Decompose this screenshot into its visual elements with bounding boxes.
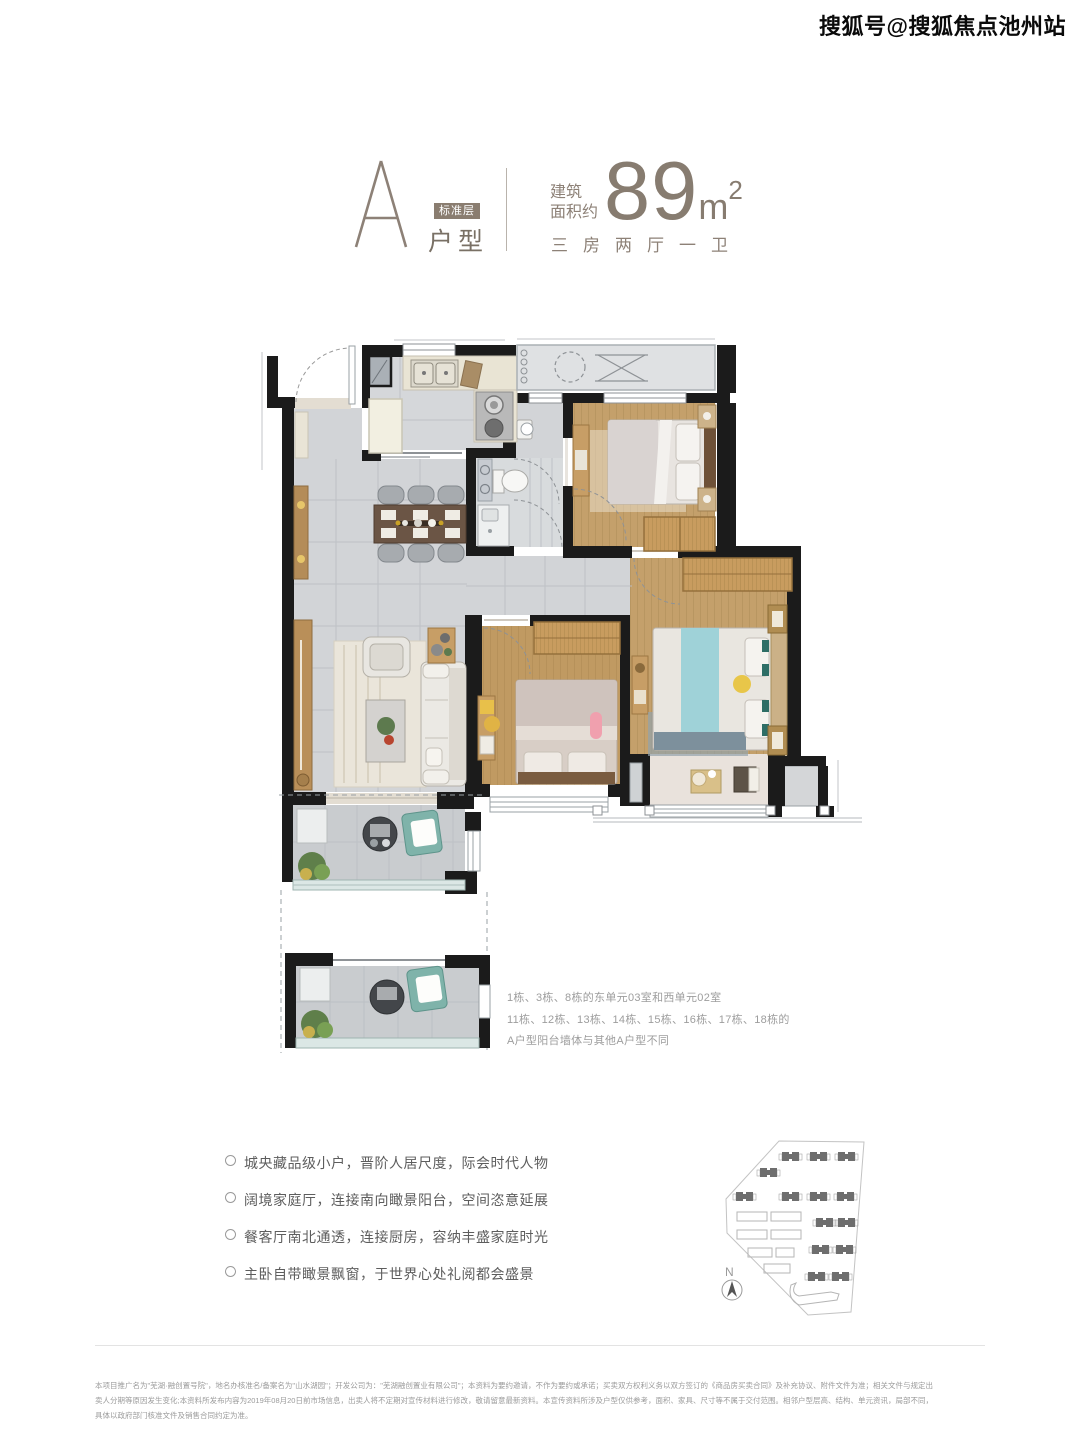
svg-text:N: N [725,1265,734,1279]
